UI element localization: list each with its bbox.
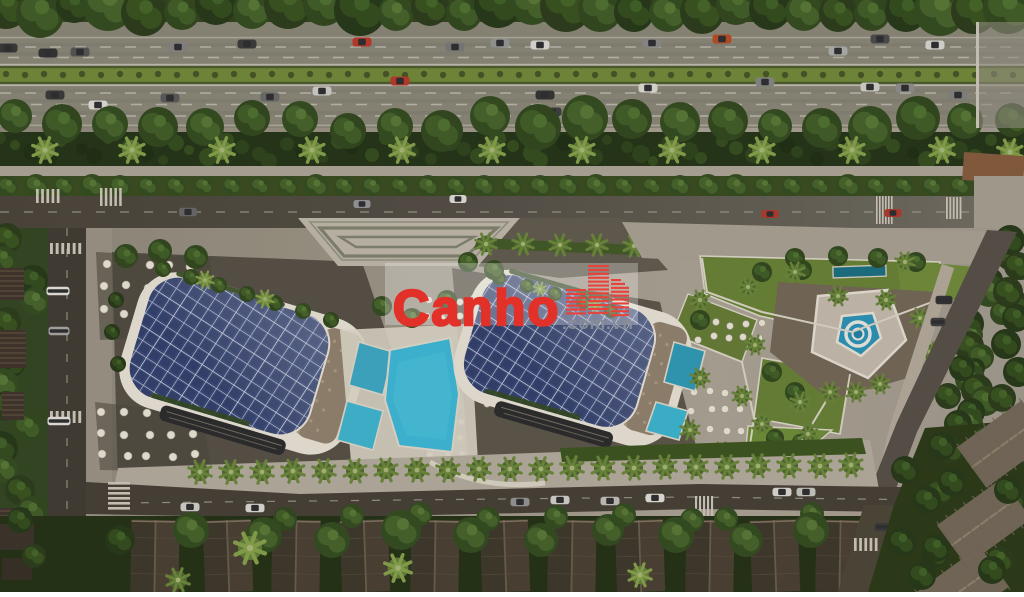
svg-text:.com.vn: .com.vn xyxy=(562,313,634,333)
svg-text:Canho: Canho xyxy=(393,280,561,336)
